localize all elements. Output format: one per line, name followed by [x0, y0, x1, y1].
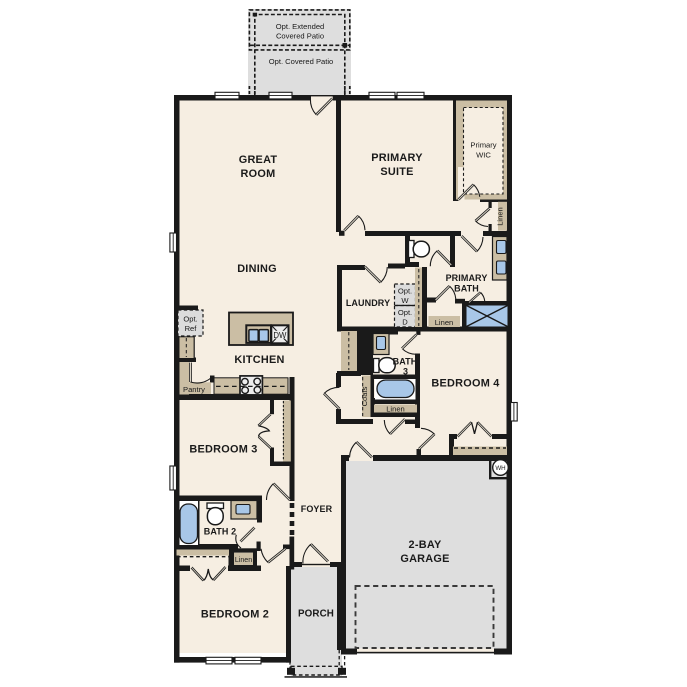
svg-text:DW: DW [273, 331, 287, 340]
svg-text:PRIMARY: PRIMARY [446, 273, 488, 283]
svg-text:WH: WH [495, 465, 505, 472]
svg-text:ROOM: ROOM [241, 168, 276, 180]
svg-text:PRIMARY: PRIMARY [371, 152, 423, 164]
svg-text:GARAGE: GARAGE [400, 553, 449, 565]
svg-text:Opt.: Opt. [183, 315, 197, 324]
svg-text:W: W [401, 296, 409, 305]
svg-text:Covered Patio: Covered Patio [276, 32, 324, 41]
svg-text:GREAT: GREAT [239, 154, 278, 166]
svg-text:Opt. Covered Patio: Opt. Covered Patio [269, 57, 334, 66]
svg-text:SUITE: SUITE [380, 166, 413, 178]
svg-text:Opt.: Opt. [398, 287, 412, 296]
svg-text:Pantry: Pantry [183, 385, 205, 394]
svg-text:Ref: Ref [185, 324, 198, 333]
svg-text:BATH 2: BATH 2 [204, 527, 236, 537]
svg-text:Linen: Linen [386, 404, 405, 413]
svg-text:BATH: BATH [454, 284, 479, 294]
svg-text:PORCH: PORCH [298, 609, 334, 620]
svg-text:BATH: BATH [393, 357, 418, 367]
svg-text:Opt.: Opt. [398, 308, 412, 317]
svg-text:Coats: Coats [360, 386, 369, 406]
svg-text:3: 3 [403, 367, 408, 377]
svg-text:Linen: Linen [235, 556, 252, 564]
svg-text:BEDROOM 3: BEDROOM 3 [189, 444, 257, 456]
svg-text:KITCHEN: KITCHEN [234, 354, 284, 366]
svg-text:DINING: DINING [237, 263, 277, 275]
svg-text:BEDROOM 4: BEDROOM 4 [431, 378, 499, 390]
svg-text:WIC: WIC [476, 151, 491, 160]
svg-text:Primary: Primary [470, 141, 496, 150]
svg-text:Opt. Extended: Opt. Extended [276, 22, 325, 31]
svg-text:Linen: Linen [496, 207, 505, 226]
svg-text:FOYER: FOYER [301, 504, 333, 514]
svg-text:D: D [402, 318, 408, 327]
svg-text:BEDROOM 2: BEDROOM 2 [201, 609, 269, 621]
svg-text:2-BAY: 2-BAY [409, 539, 442, 551]
svg-text:Linen: Linen [435, 318, 454, 327]
svg-text:LAUNDRY: LAUNDRY [346, 298, 390, 308]
